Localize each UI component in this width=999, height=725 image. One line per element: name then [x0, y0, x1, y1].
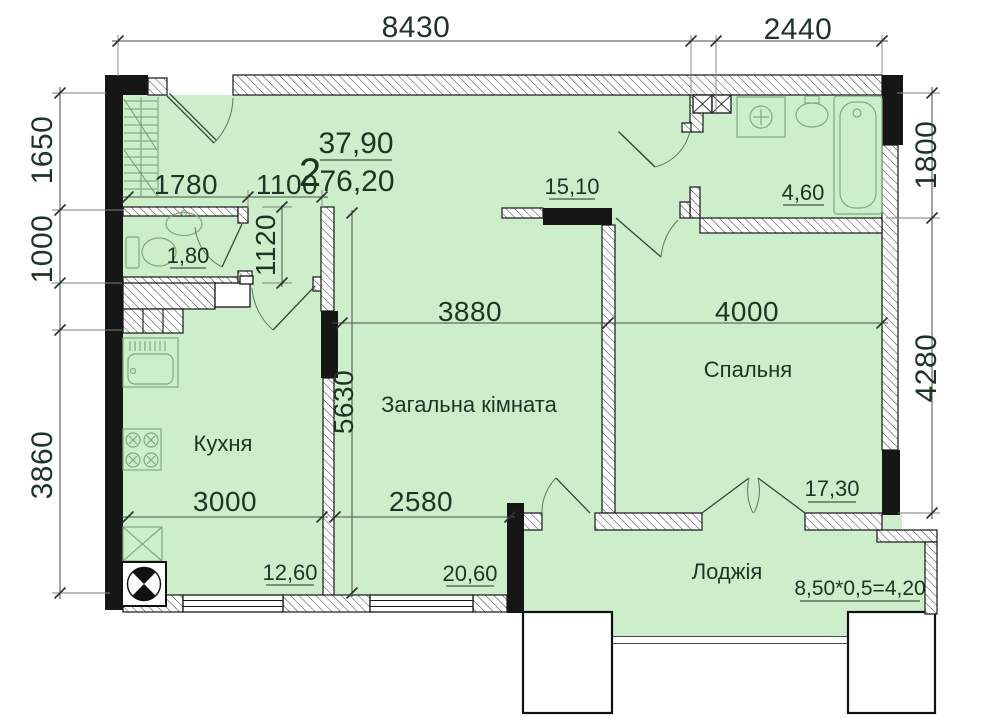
- dim-right-lower: 4280: [910, 334, 943, 403]
- bathroom-area: 4,60: [782, 180, 825, 205]
- wall-bath-bottom: [700, 218, 882, 233]
- window: [370, 595, 473, 612]
- dim-left-upper: 1650: [26, 116, 59, 185]
- kitchen-area: 12,60: [262, 560, 317, 585]
- dim-right-upper: 1800: [910, 121, 943, 190]
- dim-living-width: 3880: [438, 296, 502, 327]
- wall-segment: [240, 276, 253, 284]
- dim-bedroom-width: 4000: [715, 296, 779, 327]
- room-fill-areas: [123, 95, 937, 636]
- bedroom-name: Спальня: [704, 357, 792, 382]
- wall-hall: [502, 208, 543, 218]
- window: [183, 595, 283, 612]
- wall-pier: [321, 311, 338, 378]
- loggia-area-formula: 8,50*0,5=4,20: [794, 577, 925, 600]
- wall-segment: [148, 78, 167, 95]
- dim-living-height: 5630: [328, 370, 359, 434]
- wall-bedroom-bottom: [595, 513, 702, 530]
- wall-hall-bearing: [543, 208, 612, 225]
- dim-top-main: 8430: [382, 11, 451, 44]
- wall-bedroom-divider: [602, 225, 615, 513]
- wall-left-bearing: [105, 78, 123, 610]
- living-name: Загальна кімната: [381, 392, 557, 417]
- floor-plan-page: 8430 2440 1650 1000 3860 1800 4280 1780 …: [0, 0, 999, 725]
- dim-left-mid: 1000: [26, 215, 59, 284]
- wall-segment: [523, 513, 542, 530]
- wall-bottom: [283, 595, 370, 612]
- dim-left-lower: 3860: [26, 431, 59, 500]
- wall-segment: [680, 202, 690, 218]
- loggia-name: Лоджія: [692, 559, 763, 584]
- wall-pier: [882, 450, 900, 515]
- bedroom-area: 17,30: [804, 476, 859, 501]
- pillar-right: [848, 612, 935, 713]
- dim-kitchen-width: 3000: [193, 486, 257, 517]
- hall-area: 15,10: [544, 174, 599, 199]
- wall-top: [233, 75, 882, 95]
- floor-plan-drawing: 8430 2440 1650 1000 3860 1800 4280 1780 …: [0, 0, 999, 725]
- dim-wc-height: 1120: [250, 214, 281, 276]
- wall-corner: [105, 75, 148, 95]
- duct-block: [123, 309, 183, 333]
- apartment-total-area: 76,20: [319, 165, 394, 198]
- wall-kitchen-divider: [321, 207, 334, 311]
- living-area: 20,60: [442, 561, 497, 586]
- wall-loggia-top: [877, 530, 937, 542]
- dim-living-width-2: 2580: [389, 486, 453, 517]
- pillar-left: [523, 612, 612, 713]
- wall-bath-left: [690, 187, 700, 218]
- wall-right: [882, 145, 898, 450]
- wall-segment: [682, 123, 691, 132]
- dim-top-bath: 2440: [764, 13, 833, 46]
- wall-segment: [238, 207, 248, 223]
- wall-bedroom-bottom: [805, 513, 882, 530]
- loggia-floor-fill-bottom: [612, 612, 848, 636]
- wall-column: [882, 75, 903, 145]
- dim-hall-left: 1780: [154, 169, 218, 200]
- wall-loggia-right: [925, 542, 937, 614]
- duct-block: [123, 283, 215, 309]
- wc-area: 1,80: [167, 243, 210, 268]
- wall-segment: [215, 283, 250, 307]
- apartment-living-area: 37,90: [318, 127, 393, 160]
- wall-bottom: [473, 595, 507, 612]
- ventilation-symbol: [122, 562, 166, 606]
- wall-pier: [507, 503, 524, 613]
- wall-wc-top: [123, 207, 238, 216]
- kitchen-name: Кухня: [194, 431, 253, 456]
